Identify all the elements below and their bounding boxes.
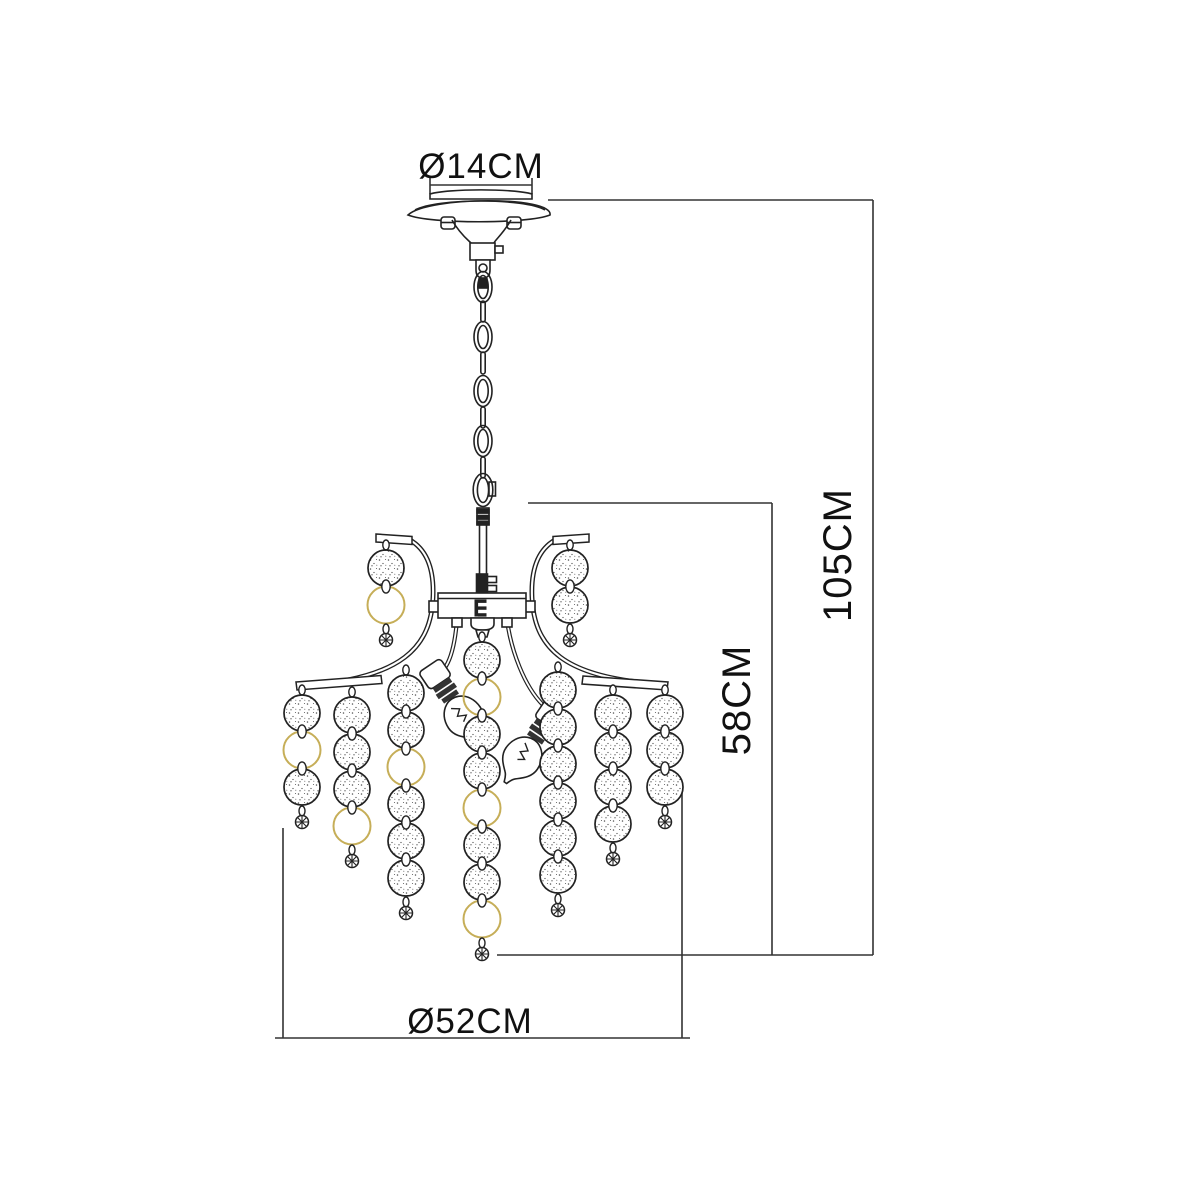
drop-facets	[346, 855, 359, 868]
bead-connector	[402, 705, 410, 718]
bead-connector	[609, 725, 617, 738]
canopy-cone	[452, 220, 511, 243]
bead-connector	[478, 746, 486, 759]
bead-strand	[464, 632, 501, 961]
canopy-fitting-screw	[495, 246, 503, 253]
drop-facets	[380, 634, 393, 647]
bead-connector	[478, 672, 486, 685]
right-arm	[532, 540, 665, 684]
drop-facets	[564, 634, 577, 647]
label-overall-height: 105CM	[816, 488, 860, 622]
label-body-height: 58CM	[715, 645, 759, 756]
bead-connector	[478, 820, 486, 833]
suspension-chain	[473, 272, 496, 595]
chain-carabiner	[473, 474, 495, 507]
left-arm	[300, 540, 433, 686]
drop-pin	[349, 845, 355, 855]
hub-socket-cup	[471, 618, 494, 630]
bead-strand	[368, 540, 405, 647]
drop-pin	[479, 938, 485, 948]
bead-connector	[609, 762, 617, 775]
bead-connector	[348, 801, 356, 814]
bead-connector	[348, 727, 356, 740]
bead-connector	[348, 764, 356, 777]
hub-bracket	[475, 600, 487, 617]
drop-facets	[607, 853, 620, 866]
bead-connector	[478, 709, 486, 722]
bead-strand	[647, 685, 683, 829]
drop-facets	[476, 948, 489, 961]
canopy-plate	[430, 190, 532, 199]
drop-facets	[296, 816, 309, 829]
bead-connector	[566, 580, 574, 593]
drop-pin	[403, 897, 409, 907]
bead-connector	[554, 776, 562, 789]
bead-strand	[334, 687, 371, 868]
drop-pin	[383, 624, 389, 634]
drop-pin	[555, 894, 561, 904]
canopy-rim	[408, 201, 550, 222]
bead-connector	[298, 762, 306, 775]
bead-strand	[388, 665, 425, 920]
hanger-pin	[479, 632, 485, 642]
bead-connector	[478, 894, 486, 907]
drop-facets	[400, 907, 413, 920]
canopy-fitting	[470, 243, 495, 260]
hanger-pin	[299, 685, 305, 695]
bead-connector	[298, 725, 306, 738]
bead-strand	[540, 662, 576, 917]
bead-connector	[661, 725, 669, 738]
hub-foot-right	[502, 618, 512, 627]
chain-ferrule	[477, 508, 489, 525]
drop-pin	[662, 806, 668, 816]
drop-pin	[299, 806, 305, 816]
hanger-pin	[403, 665, 409, 675]
bead-strand	[552, 540, 588, 647]
label-canopy-diameter: Ø14CM	[418, 147, 544, 186]
chain-ferrule-top	[479, 279, 487, 288]
bead-connector	[402, 779, 410, 792]
hanger-pin	[555, 662, 561, 672]
drop-facets	[552, 904, 565, 917]
hanger-pin	[662, 685, 668, 695]
bead-connector	[554, 739, 562, 752]
left-arm-bottom-bar	[296, 676, 382, 691]
rod-ferrule	[477, 574, 497, 592]
bead-connector	[554, 850, 562, 863]
hub-foot-left	[452, 618, 462, 627]
hanger-pin	[567, 540, 573, 550]
drop-facets	[659, 816, 672, 829]
bead-connector	[554, 702, 562, 715]
central-hub	[429, 593, 535, 637]
bead-connector	[554, 813, 562, 826]
hanger-pin	[349, 687, 355, 697]
bead-connector	[402, 742, 410, 755]
label-body-diameter: Ø52CM	[407, 1002, 533, 1041]
hanger-pin	[610, 685, 616, 695]
bead-connector	[609, 799, 617, 812]
bead-strand	[595, 685, 631, 866]
technical-drawing-page: Ø14CM 105CM 58CM Ø52CM	[0, 0, 1200, 1200]
hanger-pin	[383, 540, 389, 550]
bead-strand	[284, 685, 321, 829]
bead-connector	[382, 580, 390, 593]
bead-connector	[478, 857, 486, 870]
left-arm-top-bar	[376, 534, 412, 545]
chain-link	[474, 272, 492, 457]
drop-pin	[567, 624, 573, 634]
chandelier-drawing: Ø14CM 105CM 58CM Ø52CM	[0, 0, 1200, 1200]
drop-pin	[610, 843, 616, 853]
bead-connector	[478, 783, 486, 796]
bead-connector	[661, 762, 669, 775]
bead-connector	[402, 816, 410, 829]
bead-connector	[402, 853, 410, 866]
